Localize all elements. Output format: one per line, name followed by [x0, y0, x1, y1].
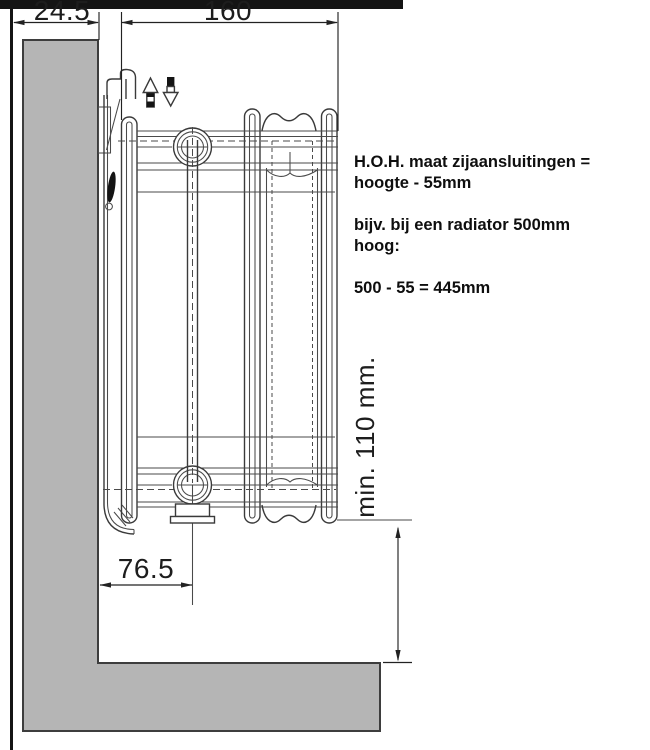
arrowhead-left [13, 20, 25, 25]
convector-bottom-wave [262, 505, 316, 522]
left-border-line [10, 0, 13, 750]
mounting-bracket [99, 70, 136, 535]
annotation-calculation: 500 - 55 = 445mm [354, 278, 650, 299]
top-header-lines [137, 131, 338, 170]
rear-panel-inner [327, 114, 333, 518]
arrowhead-right [181, 582, 193, 587]
side-connections [174, 127, 212, 605]
radiator-panels [122, 109, 338, 523]
dimension-label-floor-clearance: min. 110 mm. [350, 356, 380, 518]
arrow-up-head [143, 78, 158, 93]
rear-panel [322, 109, 338, 523]
drain-flange [171, 504, 215, 523]
convector-top-wave [262, 114, 316, 131]
annotation-example-line1: bijv. bij een radiator 500mm [354, 215, 650, 236]
annotation-example-line2: hoog: [354, 236, 650, 257]
arrow-up-icon [143, 78, 158, 107]
radiator-headers [103, 131, 338, 507]
front-panel-inner [127, 122, 133, 518]
flange-neck [176, 504, 210, 517]
convector-fins [262, 114, 318, 523]
convector-side-lines [267, 168, 318, 487]
arrow-down-cap [167, 77, 174, 87]
arrow-up-band-bottom [147, 102, 154, 108]
annotation-calculation-line: 500 - 55 = 445mm [354, 278, 650, 299]
arrowhead-left [121, 20, 133, 25]
dimension-label-bracket-offset: 24.5 [34, 0, 91, 26]
middle-panel-inner [250, 114, 256, 518]
bracket-slider-eye [106, 203, 113, 210]
arrow-down-shaft [167, 87, 174, 93]
annotation-rule-line1: H.O.H. maat zijaansluitingen = [354, 152, 650, 173]
dimension-label-radiator-depth: 160 [204, 0, 252, 26]
dimension-connection-offset: 76.5 [100, 553, 193, 588]
dimension-radiator-depth: 160 [121, 0, 338, 131]
dimension-label-connection-offset: 76.5 [118, 553, 175, 584]
annotation-example: bijv. bij een radiator 500mm hoog: [354, 215, 650, 257]
bracket-foot-inner [108, 503, 135, 534]
front-panel [122, 117, 138, 523]
diagram-drawing: 24.5 160 76.5 min. 110 mm. [0, 0, 650, 750]
arrowhead-left [100, 582, 112, 587]
middle-panel [245, 109, 261, 523]
convector-bottom-valley [267, 479, 318, 485]
hang-direction-arrows [143, 77, 178, 107]
radiator-mounting-diagram: 24.5 160 76.5 min. 110 mm. H.O. [0, 0, 650, 750]
annotation-rule-line2: hoogte - 55mm [354, 173, 650, 194]
annotation-rule: H.O.H. maat zijaansluitingen = hoogte - … [354, 152, 650, 194]
arrow-down-icon [163, 77, 178, 106]
arrowhead-right [327, 20, 339, 25]
flange-base [171, 517, 215, 524]
dimension-floor-clearance: min. 110 mm. [350, 356, 412, 662]
bottom-header-lines [137, 468, 338, 507]
arrow-down-head [163, 93, 178, 107]
annotation-block: H.O.H. maat zijaansluitingen = hoogte - … [354, 152, 650, 320]
convector-top-valley [267, 170, 318, 176]
arrowhead-top [395, 527, 400, 539]
arrowhead-bottom [395, 650, 400, 662]
